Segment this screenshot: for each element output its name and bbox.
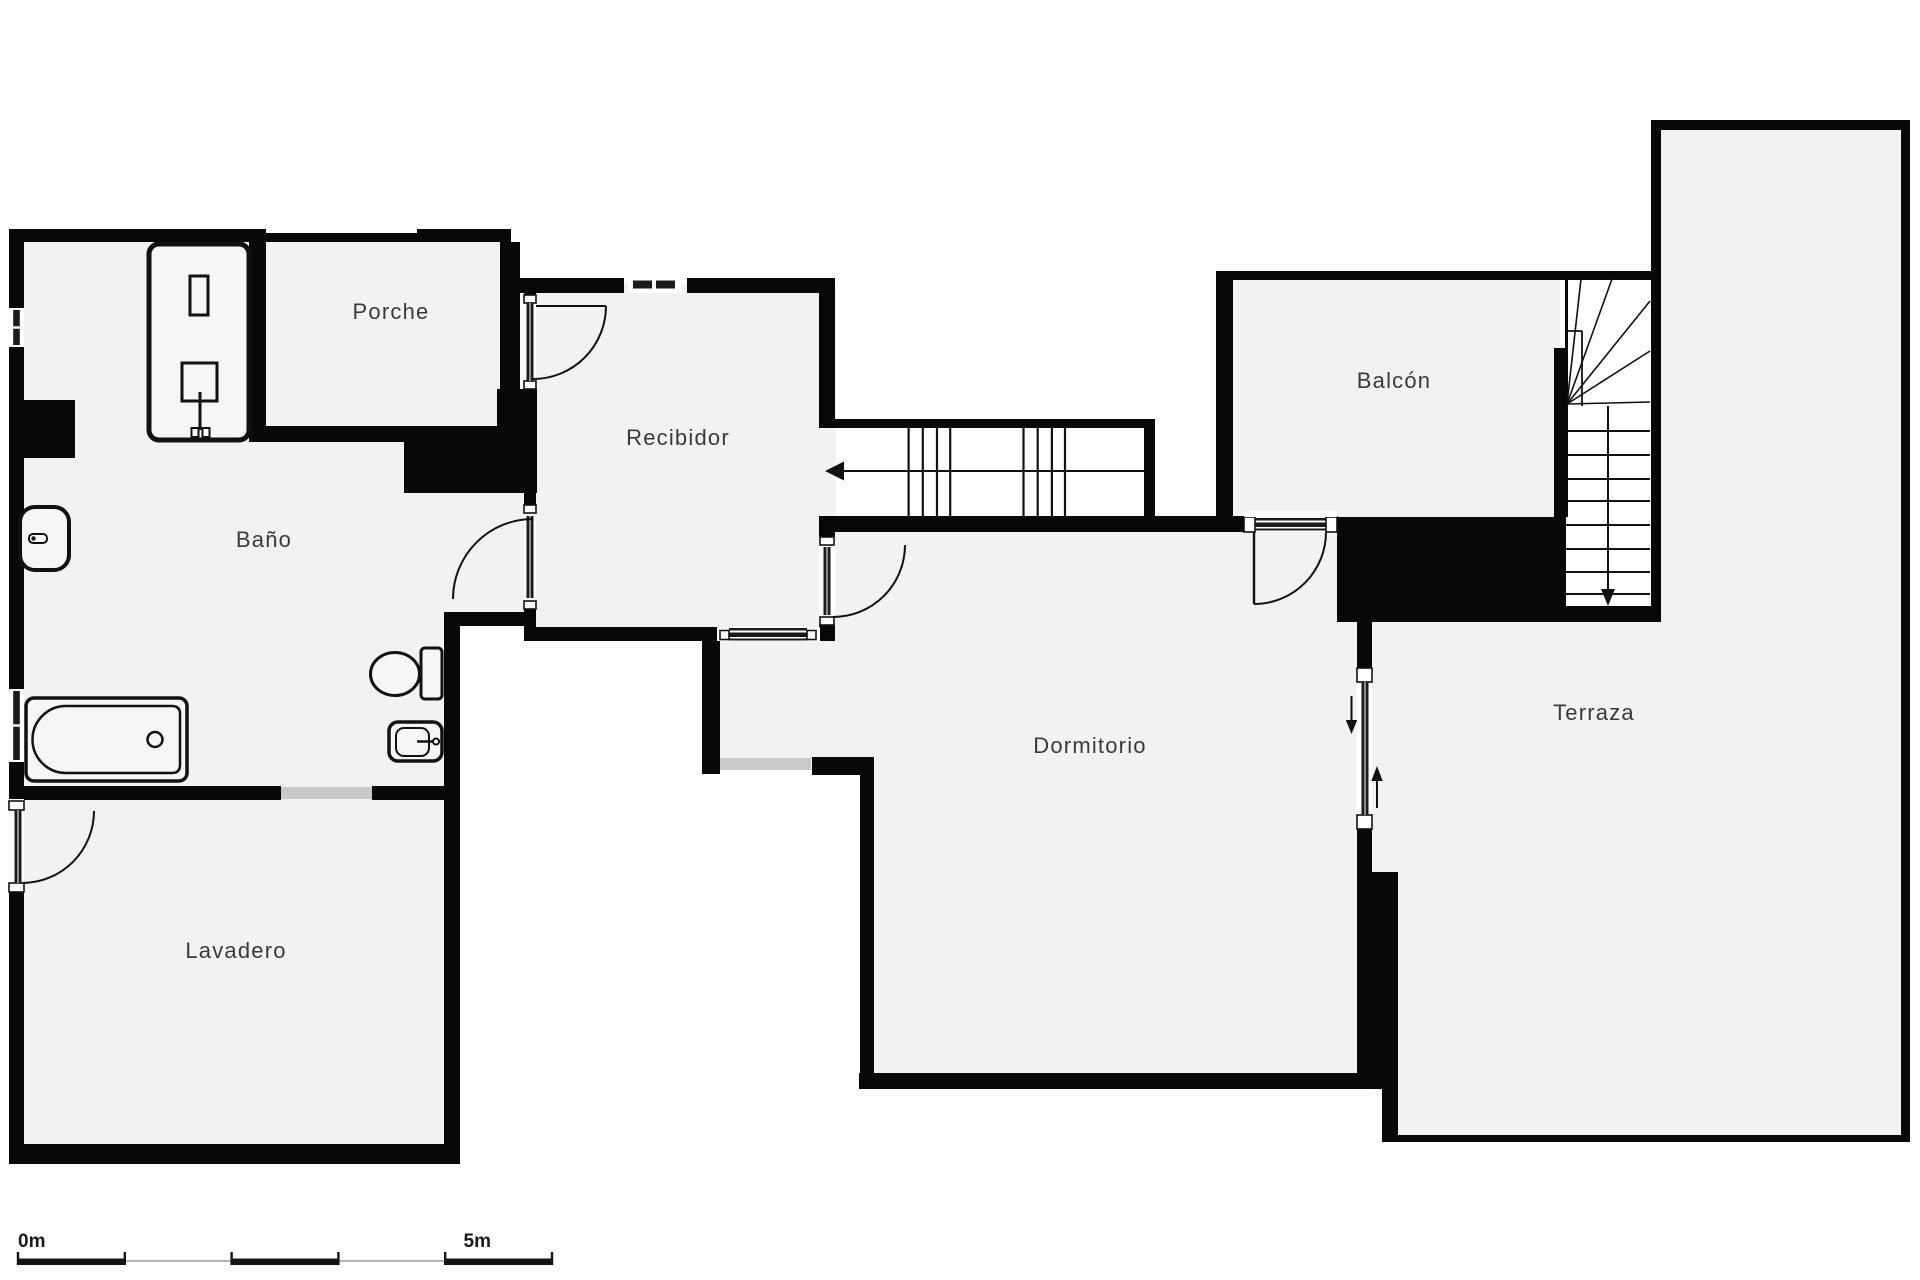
svg-text:Lavadero: Lavadero (185, 938, 286, 963)
svg-text:Baño: Baño (236, 527, 292, 552)
svg-text:Recibidor: Recibidor (626, 425, 730, 450)
svg-text:Dormitorio: Dormitorio (1033, 733, 1146, 758)
svg-text:Terraza: Terraza (1553, 700, 1635, 725)
svg-text:0m: 0m (18, 1231, 45, 1252)
svg-text:Porche: Porche (353, 299, 430, 324)
svg-text:Balcón: Balcón (1357, 368, 1431, 393)
svg-text:5m: 5m (464, 1231, 491, 1252)
